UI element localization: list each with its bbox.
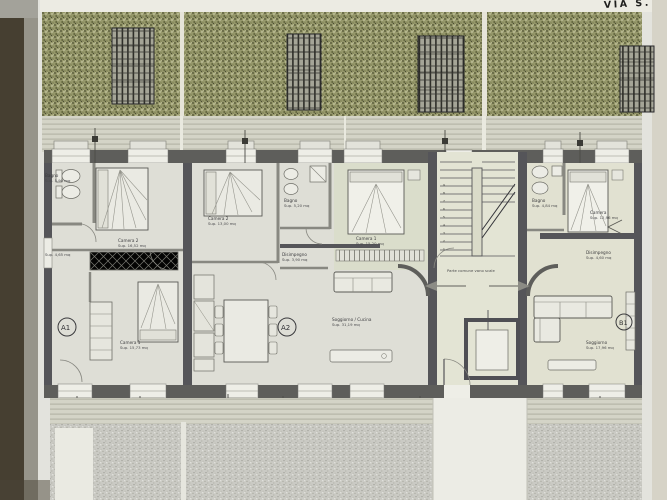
- floorplan-photo: VIA S.: [0, 0, 667, 500]
- photo-shading: [0, 0, 652, 500]
- photo-left-dark-band: [0, 0, 24, 500]
- photo-topleft-corner: [0, 0, 42, 18]
- floorplan-drawing: VIA S.: [0, 0, 667, 500]
